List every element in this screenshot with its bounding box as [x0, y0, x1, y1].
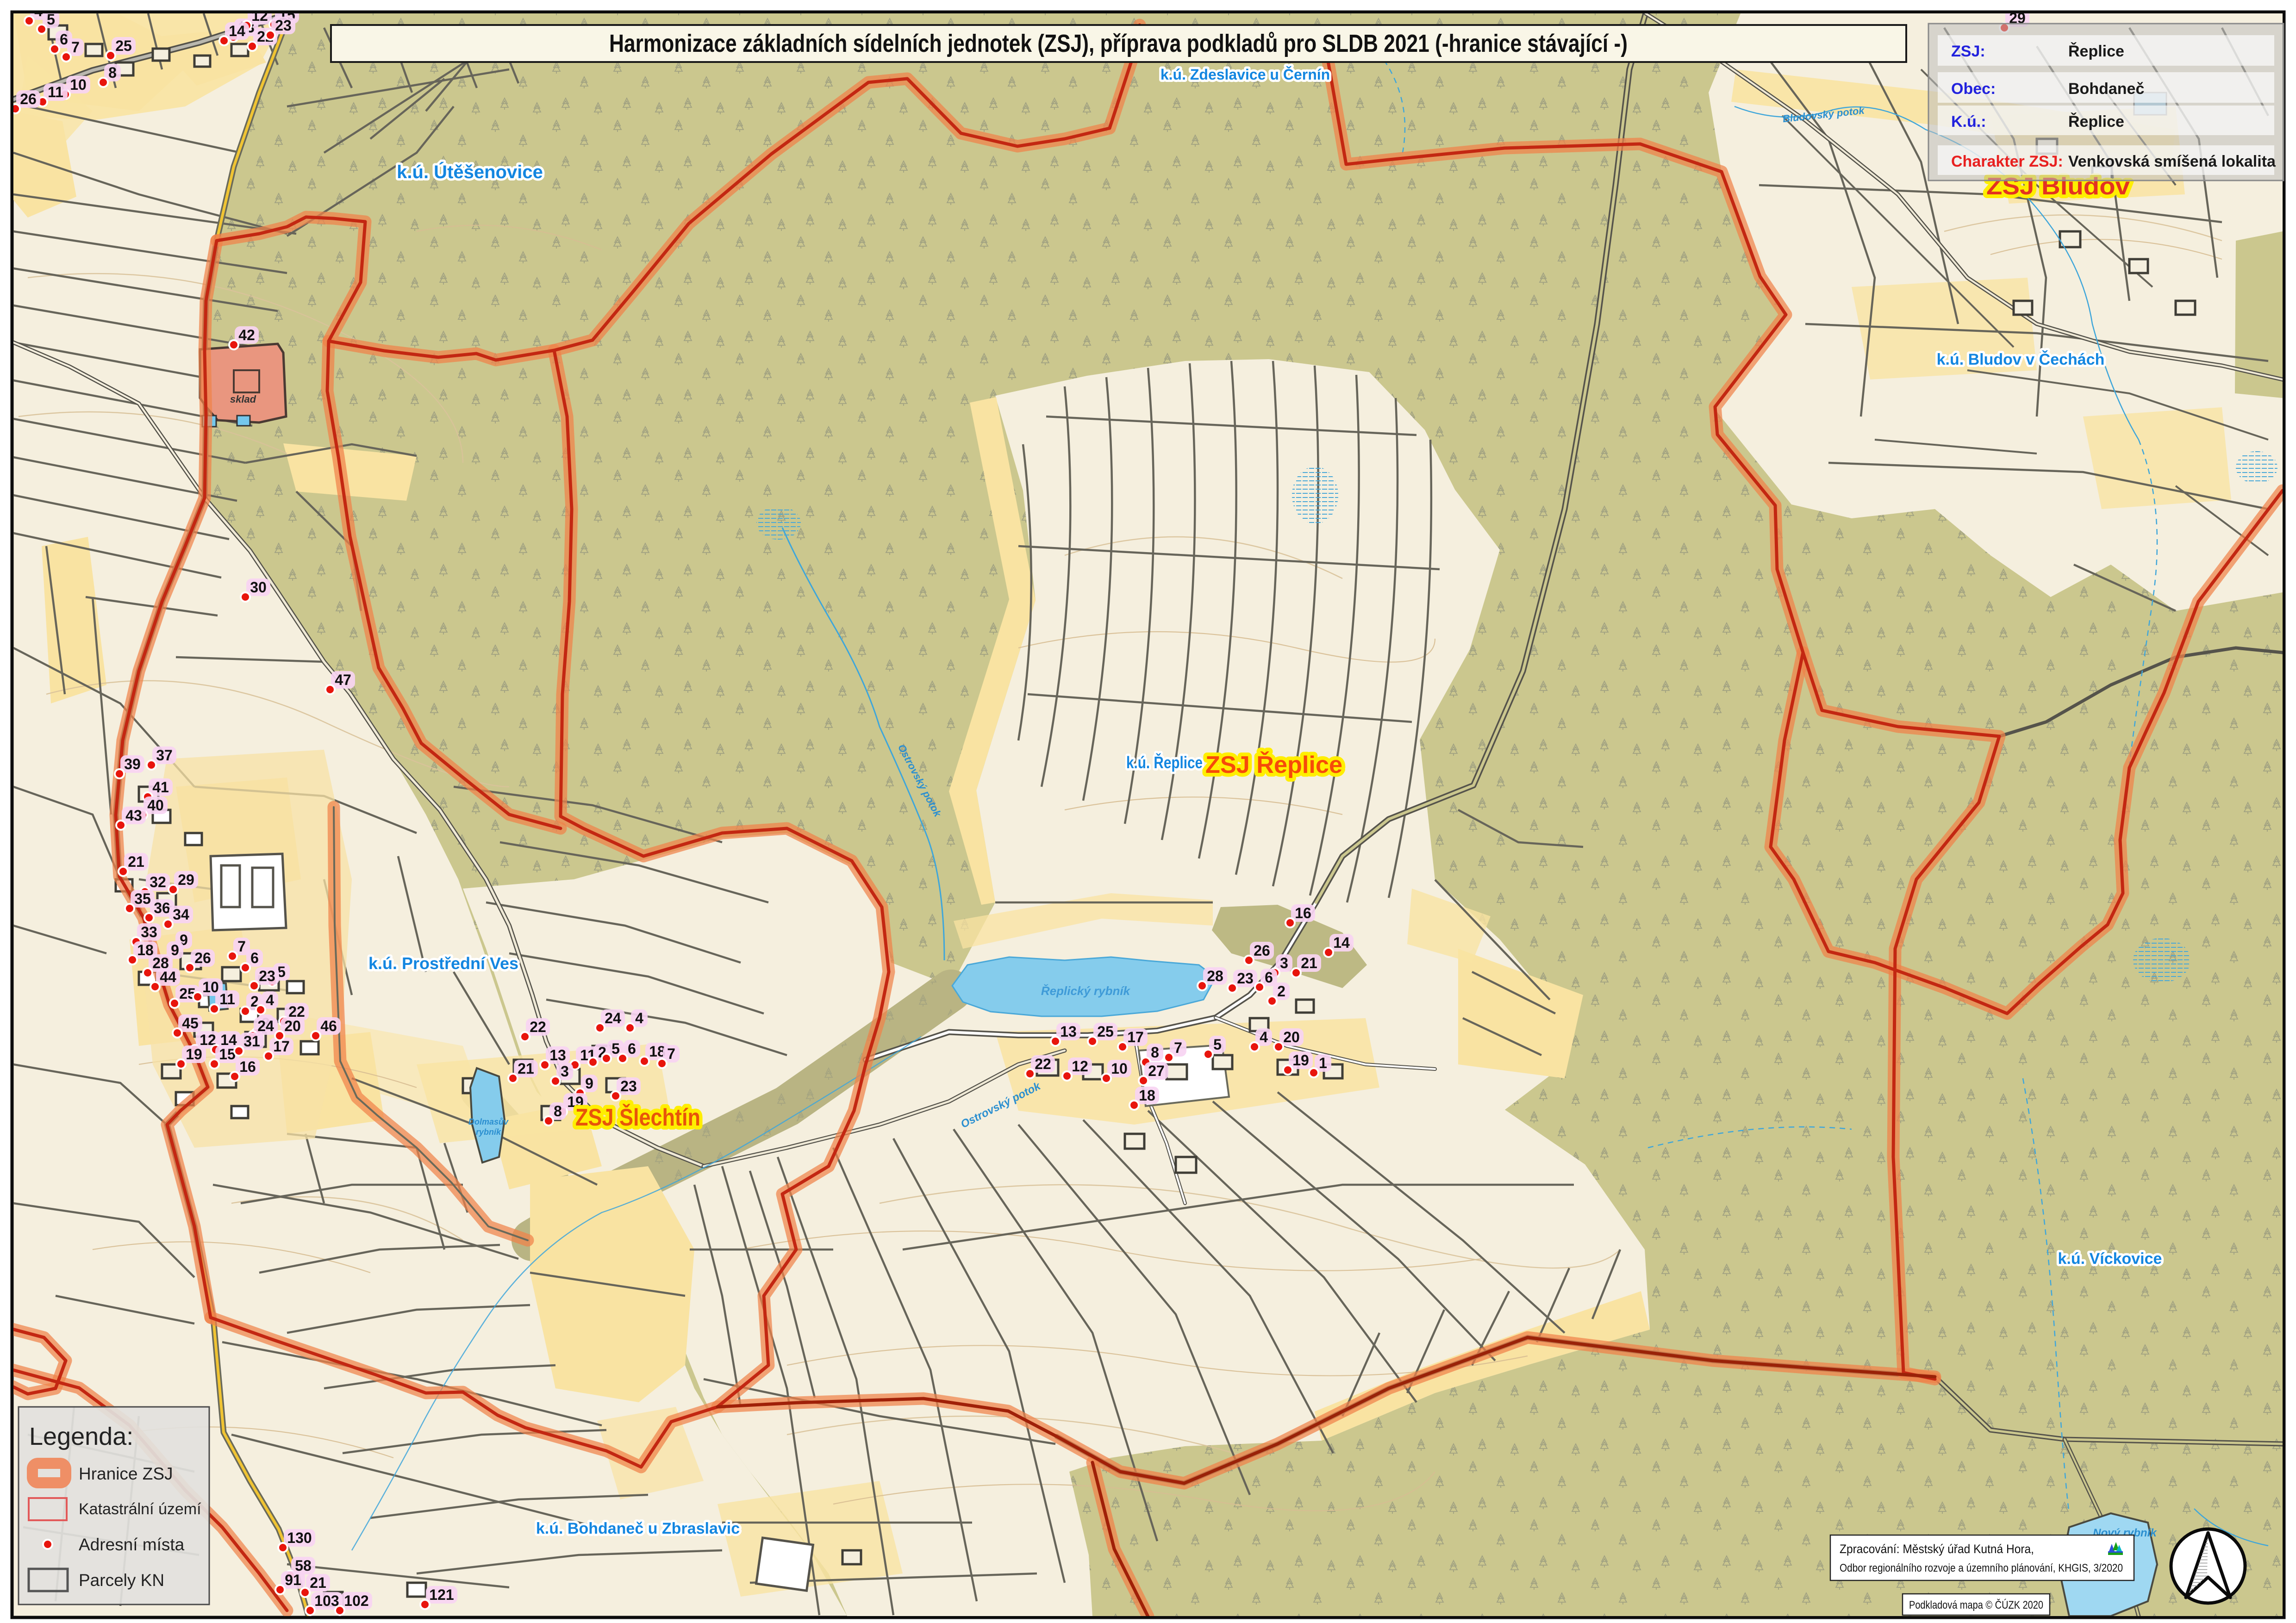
svg-text:102: 102: [344, 1592, 368, 1609]
svg-text:23: 23: [1237, 970, 1254, 987]
svg-text:22: 22: [530, 1019, 546, 1035]
svg-text:41: 41: [152, 779, 169, 796]
svg-text:35: 35: [134, 890, 151, 907]
svg-text:Dolmasův: Dolmasův: [468, 1117, 509, 1126]
svg-text:rybník: rybník: [476, 1127, 501, 1137]
svg-text:46: 46: [320, 1018, 337, 1034]
svg-text:Obec:: Obec:: [1951, 80, 1996, 98]
svg-text:Katastrální území: Katastrální území: [79, 1500, 201, 1518]
svg-text:130: 130: [287, 1530, 312, 1546]
svg-text:37: 37: [156, 747, 173, 764]
svg-text:Podkladová mapa © ČÚZK 2020: Podkladová mapa © ČÚZK 2020: [1909, 1598, 2043, 1611]
svg-text:32: 32: [150, 874, 166, 890]
svg-text:7: 7: [667, 1045, 675, 1062]
svg-text:Charakter ZSJ:: Charakter ZSJ:: [1951, 153, 2063, 170]
svg-text:8: 8: [108, 64, 117, 81]
svg-text:23: 23: [620, 1078, 637, 1094]
svg-text:42: 42: [238, 327, 255, 343]
svg-text:24: 24: [257, 1018, 274, 1034]
svg-text:15: 15: [219, 1046, 236, 1063]
svg-text:8: 8: [554, 1103, 562, 1119]
svg-text:11: 11: [48, 84, 63, 100]
svg-text:34: 34: [173, 906, 189, 923]
svg-text:3: 3: [561, 1063, 569, 1080]
svg-text:K.ú.:: K.ú.:: [1951, 113, 1986, 131]
svg-text:6: 6: [250, 950, 259, 966]
svg-text:8: 8: [1151, 1044, 1159, 1061]
svg-text:18: 18: [1139, 1087, 1155, 1104]
svg-text:ZSJ:: ZSJ:: [1951, 43, 1985, 60]
svg-text:21: 21: [310, 1574, 326, 1591]
svg-text:Odbor regionálního rozvoje a ú: Odbor regionálního rozvoje a územního pl…: [1840, 1562, 2123, 1574]
svg-text:k.ú. Víckovice: k.ú. Víckovice: [2058, 1250, 2162, 1268]
svg-text:29: 29: [178, 871, 194, 888]
svg-text:43: 43: [125, 807, 142, 824]
svg-text:26: 26: [20, 91, 37, 107]
svg-text:9: 9: [585, 1075, 593, 1092]
svg-text:21: 21: [1301, 955, 1317, 971]
svg-text:sklad: sklad: [230, 393, 256, 405]
svg-text:20: 20: [1283, 1029, 1300, 1045]
svg-text:7: 7: [1174, 1039, 1182, 1056]
svg-text:6: 6: [1265, 969, 1273, 986]
svg-text:1: 1: [1319, 1055, 1327, 1071]
svg-text:28: 28: [1207, 968, 1223, 984]
svg-text:27: 27: [1148, 1063, 1165, 1079]
svg-text:13: 13: [1060, 1023, 1077, 1040]
svg-text:23: 23: [275, 17, 292, 34]
svg-text:9: 9: [171, 942, 179, 958]
svg-text:44: 44: [160, 969, 176, 985]
svg-text:22: 22: [1035, 1056, 1051, 1072]
svg-text:Legenda:: Legenda:: [29, 1423, 133, 1450]
svg-text:Řeplice: Řeplice: [2068, 43, 2124, 60]
svg-text:16: 16: [239, 1058, 256, 1075]
svg-text:Venkovská smíšená lokalita: Venkovská smíšená lokalita: [2068, 153, 2276, 170]
svg-text:ZSJ Šlechtín: ZSJ Šlechtín: [575, 1104, 700, 1131]
svg-text:k.ú. Bohdaneč u Zbraslavic: k.ú. Bohdaneč u Zbraslavic: [536, 1520, 740, 1537]
svg-text:23: 23: [259, 968, 275, 984]
svg-text:40: 40: [147, 797, 164, 814]
svg-text:103: 103: [314, 1592, 339, 1609]
svg-text:3: 3: [1280, 955, 1288, 971]
svg-text:k.ú. Bludov v Čechách: k.ú. Bludov v Čechách: [1937, 350, 2105, 368]
svg-text:25: 25: [115, 37, 132, 54]
svg-text:5: 5: [1213, 1036, 1222, 1053]
svg-text:19: 19: [186, 1046, 202, 1063]
svg-text:17: 17: [1127, 1029, 1144, 1045]
svg-text:25: 25: [1097, 1023, 1114, 1040]
svg-text:24: 24: [605, 1010, 621, 1026]
svg-text:26: 26: [194, 950, 211, 966]
svg-text:Bohdaneč: Bohdaneč: [2068, 80, 2144, 98]
svg-text:Harmonizace základních sídelní: Harmonizace základních sídelních jednote…: [609, 30, 1628, 57]
svg-text:Parcely KN: Parcely KN: [79, 1571, 164, 1590]
svg-text:k.ú. Zdeslavice u Černín: k.ú. Zdeslavice u Černín: [1160, 66, 1330, 83]
svg-text:21: 21: [518, 1060, 534, 1077]
svg-text:121: 121: [429, 1586, 454, 1603]
svg-text:7: 7: [237, 938, 246, 955]
svg-text:k.ú. Prostřední Ves: k.ú. Prostřední Ves: [368, 954, 518, 973]
svg-text:10: 10: [1111, 1060, 1128, 1077]
svg-text:14: 14: [229, 23, 245, 39]
svg-text:47: 47: [335, 672, 351, 688]
svg-text:12: 12: [1072, 1058, 1088, 1075]
svg-text:16: 16: [1295, 905, 1311, 921]
svg-text:21: 21: [128, 853, 144, 870]
svg-text:Adresní místa: Adresní místa: [79, 1535, 185, 1554]
svg-text:10: 10: [70, 76, 87, 93]
svg-text:6: 6: [628, 1040, 636, 1057]
svg-text:11: 11: [219, 991, 235, 1007]
svg-text:19: 19: [1292, 1052, 1309, 1069]
svg-text:5: 5: [611, 1040, 620, 1057]
svg-text:Zpracování: Městský úřad Kutná: Zpracování: Městský úřad Kutná Hora,: [1840, 1542, 2034, 1556]
svg-text:4: 4: [1260, 1029, 1268, 1045]
svg-text:33: 33: [141, 924, 157, 940]
svg-text:4: 4: [266, 992, 274, 1008]
svg-text:14: 14: [1333, 934, 1350, 951]
svg-text:Řeplický rybník: Řeplický rybník: [1041, 984, 1131, 998]
svg-text:91: 91: [285, 1572, 301, 1588]
svg-text:31: 31: [243, 1033, 260, 1050]
svg-text:45: 45: [182, 1015, 199, 1032]
svg-text:ZSJ Řeplice: ZSJ Řeplice: [1205, 751, 1342, 778]
svg-text:7: 7: [71, 39, 80, 56]
svg-text:2: 2: [1277, 983, 1285, 1000]
svg-text:39: 39: [124, 756, 141, 772]
svg-text:k.ú. Útěšenovice: k.ú. Útěšenovice: [397, 161, 543, 182]
svg-text:20: 20: [284, 1018, 301, 1034]
svg-text:26: 26: [1254, 942, 1270, 959]
svg-text:5: 5: [47, 11, 55, 28]
svg-text:36: 36: [154, 900, 170, 916]
svg-text:6: 6: [60, 31, 68, 48]
svg-text:Hranice ZSJ: Hranice ZSJ: [79, 1464, 173, 1483]
svg-text:k.ú. Řeplice: k.ú. Řeplice: [1126, 752, 1203, 772]
svg-text:Řeplice: Řeplice: [2068, 113, 2124, 131]
svg-text:13: 13: [549, 1047, 566, 1063]
svg-text:30: 30: [250, 579, 267, 596]
svg-text:4: 4: [635, 1010, 643, 1026]
